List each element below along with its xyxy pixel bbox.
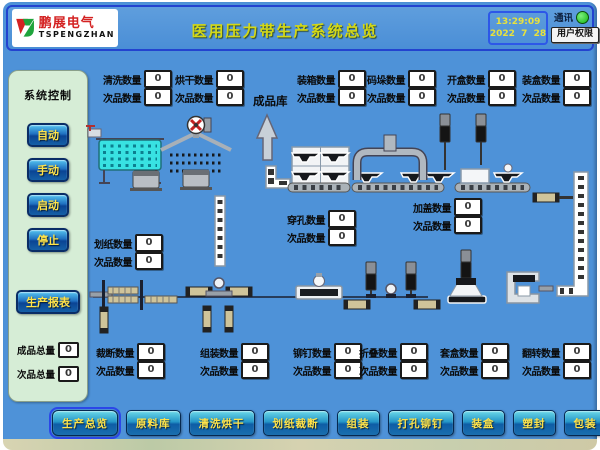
counter-label: 划纸数量	[90, 236, 135, 251]
nav-button-overview[interactable]: 生产总览	[52, 410, 118, 436]
counter-defect-row: 次品数量 0	[436, 361, 514, 379]
counter-defect-value-box: 0	[488, 88, 516, 106]
counter-value-box: 0	[481, 343, 509, 361]
counter-defect-label: 次品数量	[99, 90, 144, 105]
counter-main-row: 划纸数量 0	[90, 234, 168, 252]
counter-value-box: 0	[135, 234, 163, 252]
counter-main-row: 装盒数量 0	[518, 70, 596, 88]
counters-layer: 成品库 清洗数量 0 次品数量 0 烘干数量 0 次品数量 0 装箱数量 0 次…	[0, 0, 600, 450]
nav-button-wash-dry[interactable]: 清洗烘干	[189, 410, 255, 436]
counter-defect-row: 次品数量 0	[196, 361, 274, 379]
counter-defect-row: 次品数量 0	[293, 88, 371, 106]
nav-button-material-store[interactable]: 原料库	[126, 410, 181, 436]
counter-defect-value-box: 0	[216, 88, 244, 106]
nav-button-sealing[interactable]: 塑封	[513, 410, 556, 436]
counter-defect-value-box: 0	[328, 228, 356, 246]
counter-defect-value-box: 0	[338, 88, 366, 106]
counter-defect-value-box: 0	[241, 361, 269, 379]
counter-value-box: 0	[328, 210, 356, 228]
counter-defect-label: 次品数量	[355, 363, 400, 378]
counter-defect-label: 次品数量	[436, 363, 481, 378]
counter-defect-label: 次品数量	[363, 90, 408, 105]
counter-cap: 加盖数量 0 次品数量 0	[409, 198, 487, 234]
counter-defect-value-box: 0	[408, 88, 436, 106]
counter-label: 烘干数量	[171, 72, 216, 87]
counter-value-box: 0	[216, 70, 244, 88]
counter-main-row: 组装数量 0	[196, 343, 274, 361]
counter-value-box: 0	[563, 343, 591, 361]
counter-label: 铆钉数量	[289, 345, 334, 360]
counter-defect-row: 次品数量 0	[363, 88, 441, 106]
nav-button-assembly[interactable]: 组装	[337, 410, 380, 436]
counter-main-row: 清洗数量 0	[99, 70, 177, 88]
counter-value-box: 0	[454, 198, 482, 216]
counter-defect-row: 次品数量 0	[283, 228, 361, 246]
counter-open-box: 开盒数量 0 次品数量 0	[443, 70, 521, 106]
counter-main-row: 翻转数量 0	[518, 343, 596, 361]
counter-defect-row: 次品数量 0	[90, 252, 168, 270]
counter-value-box: 0	[400, 343, 428, 361]
counter-defect-row: 次品数量 0	[518, 361, 596, 379]
counter-paper-score: 划纸数量 0 次品数量 0	[90, 234, 168, 270]
counter-label: 裁断数量	[92, 345, 137, 360]
counter-label: 装盒数量	[518, 72, 563, 87]
counter-defect-row: 次品数量 0	[171, 88, 249, 106]
counter-sleeve: 套盒数量 0 次品数量 0	[436, 343, 514, 379]
counter-label: 折叠数量	[355, 345, 400, 360]
counter-label: 装箱数量	[293, 72, 338, 87]
counter-defect-value-box: 0	[563, 88, 591, 106]
counter-defect-label: 次品数量	[293, 90, 338, 105]
counter-label: 翻转数量	[518, 345, 563, 360]
counter-main-row: 烘干数量 0	[171, 70, 249, 88]
counter-defect-value-box: 0	[137, 361, 165, 379]
counter-punch: 穿孔数量 0 次品数量 0	[283, 210, 361, 246]
counter-case-pack: 装盒数量 0 次品数量 0	[518, 70, 596, 106]
counter-box-pack: 装箱数量 0 次品数量 0	[293, 70, 371, 106]
counter-label: 清洗数量	[99, 72, 144, 87]
counter-defect-label: 次品数量	[289, 363, 334, 378]
nav-button-punch-rivet[interactable]: 打孔铆钉	[388, 410, 454, 436]
nav-button-packing[interactable]: 包装	[564, 410, 600, 436]
counter-defect-row: 次品数量 0	[409, 216, 487, 234]
finished-store-label: 成品库	[253, 93, 288, 109]
counter-main-row: 加盖数量 0	[409, 198, 487, 216]
counter-main-row: 穿孔数量 0	[283, 210, 361, 228]
counter-wash: 清洗数量 0 次品数量 0	[99, 70, 177, 106]
counter-defect-row: 次品数量 0	[518, 88, 596, 106]
counter-cut: 裁断数量 0 次品数量 0	[92, 343, 170, 379]
counter-label: 码垛数量	[363, 72, 408, 87]
counter-flip: 翻转数量 0 次品数量 0	[518, 343, 596, 379]
counter-defect-value-box: 0	[481, 361, 509, 379]
counter-defect-row: 次品数量 0	[99, 88, 177, 106]
counter-defect-row: 次品数量 0	[443, 88, 521, 106]
counter-defect-value-box: 0	[454, 216, 482, 234]
counter-defect-label: 次品数量	[92, 363, 137, 378]
counter-label: 加盖数量	[409, 200, 454, 215]
counter-value-box: 0	[488, 70, 516, 88]
counter-main-row: 裁断数量 0	[92, 343, 170, 361]
counter-value-box: 0	[563, 70, 591, 88]
counter-value-box: 0	[338, 70, 366, 88]
counter-main-row: 套盒数量 0	[436, 343, 514, 361]
counter-defect-label: 次品数量	[90, 254, 135, 269]
counter-label: 组装数量	[196, 345, 241, 360]
counter-defect-label: 次品数量	[443, 90, 488, 105]
counter-defect-value-box: 0	[135, 252, 163, 270]
counter-defect-label: 次品数量	[171, 90, 216, 105]
counter-label: 套盒数量	[436, 345, 481, 360]
counter-value-box: 0	[241, 343, 269, 361]
counter-defect-label: 次品数量	[409, 218, 454, 233]
counter-main-row: 码垛数量 0	[363, 70, 441, 88]
counter-defect-label: 次品数量	[518, 90, 563, 105]
counter-label: 开盒数量	[443, 72, 488, 87]
counter-label: 穿孔数量	[283, 212, 328, 227]
counter-defect-label: 次品数量	[518, 363, 563, 378]
counter-palletize: 码垛数量 0 次品数量 0	[363, 70, 441, 106]
counter-value-box: 0	[408, 70, 436, 88]
counter-defect-row: 次品数量 0	[355, 361, 433, 379]
counter-value-box: 0	[137, 343, 165, 361]
counter-defect-label: 次品数量	[196, 363, 241, 378]
counter-defect-value-box: 0	[563, 361, 591, 379]
bottom-nav: 生产总览原料库清洗烘干划纸裁断组装打孔铆钉装盒塑封包装成品暂存	[52, 410, 600, 436]
counter-defect-label: 次品数量	[283, 230, 328, 245]
counter-main-row: 装箱数量 0	[293, 70, 371, 88]
counter-value-box: 0	[144, 70, 172, 88]
counter-dry: 烘干数量 0 次品数量 0	[171, 70, 249, 106]
counter-main-row: 开盒数量 0	[443, 70, 521, 88]
counter-defect-value-box: 0	[144, 88, 172, 106]
counter-main-row: 折叠数量 0	[355, 343, 433, 361]
counter-assemble: 组装数量 0 次品数量 0	[196, 343, 274, 379]
nav-button-boxing[interactable]: 装盒	[462, 410, 505, 436]
nav-button-score-cut[interactable]: 划纸裁断	[263, 410, 329, 436]
counter-fold: 折叠数量 0 次品数量 0	[355, 343, 433, 379]
counter-defect-row: 次品数量 0	[92, 361, 170, 379]
counter-defect-value-box: 0	[400, 361, 428, 379]
